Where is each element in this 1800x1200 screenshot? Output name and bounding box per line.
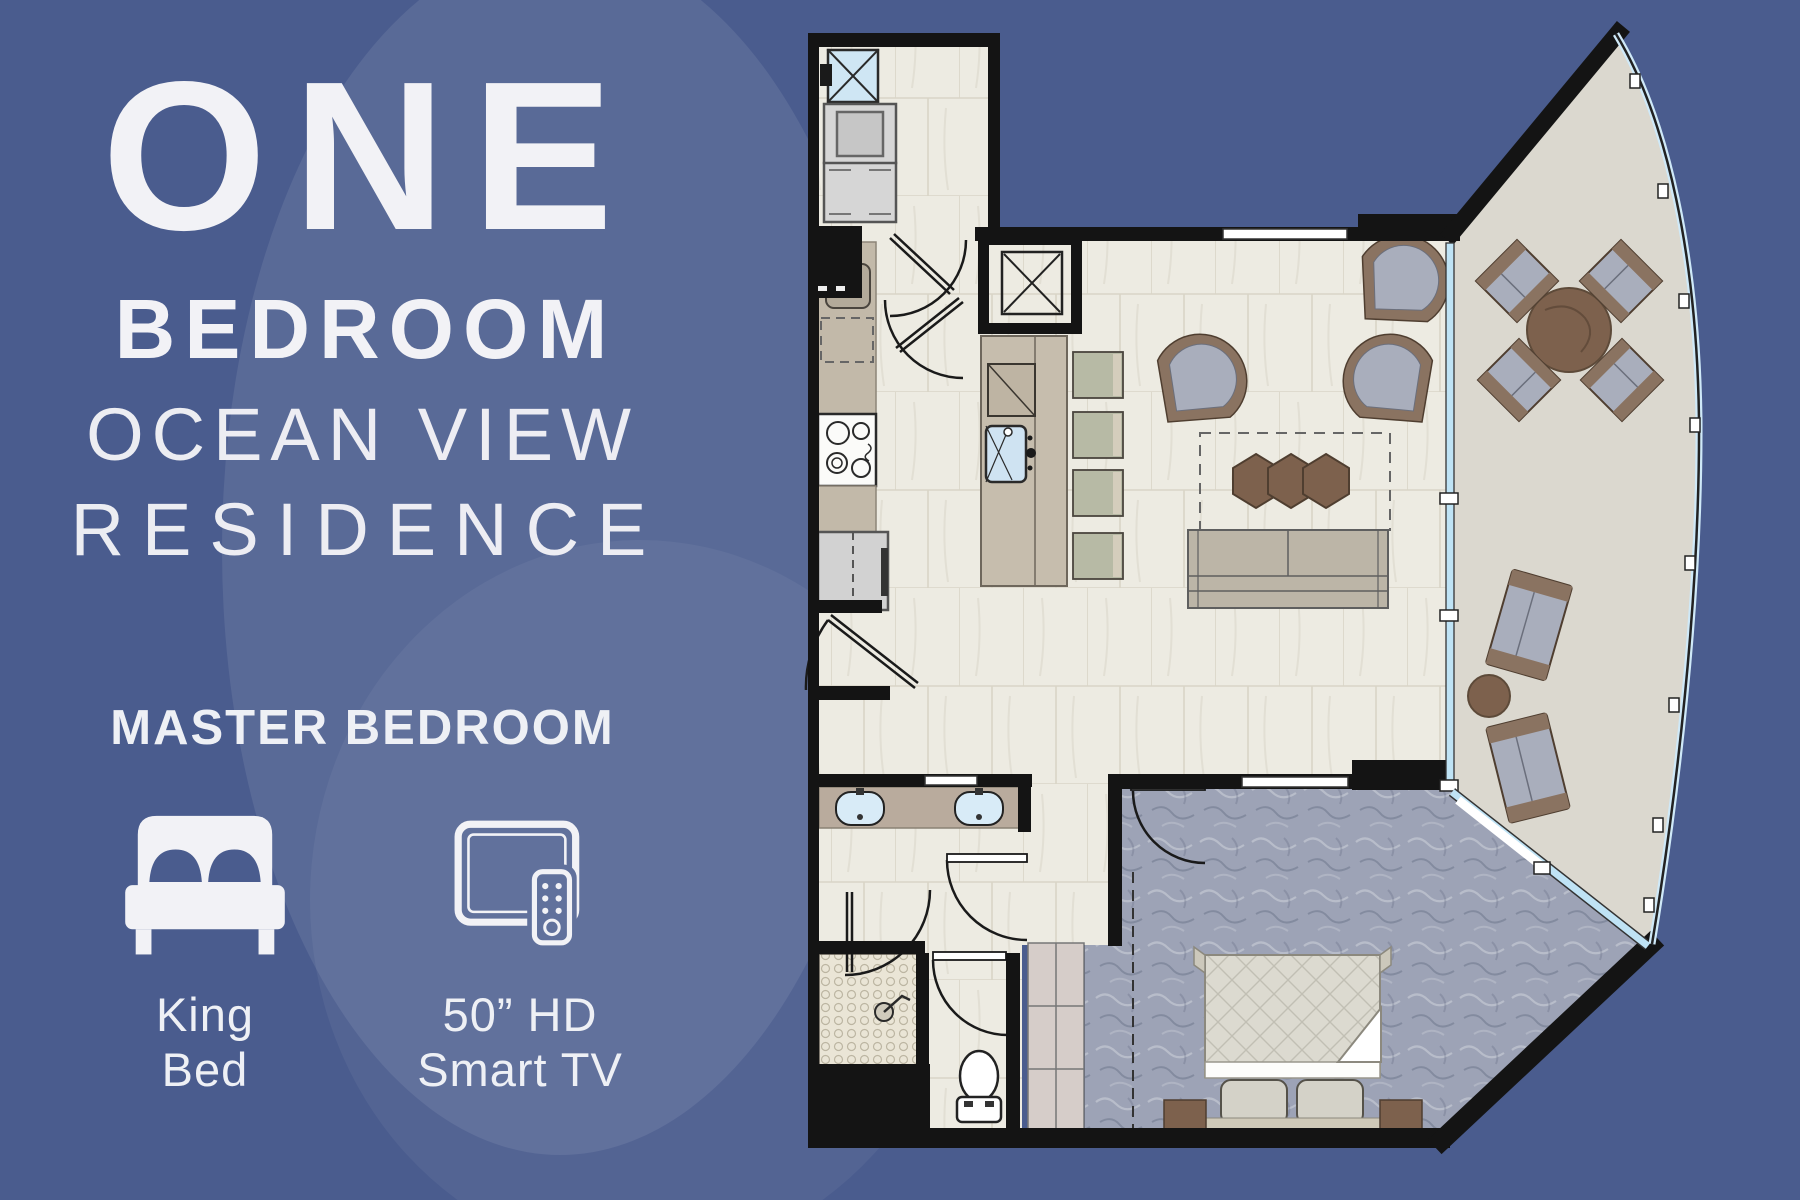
pillow <box>1297 1080 1363 1124</box>
pillow <box>1221 1080 1287 1124</box>
balcony-floor <box>1449 34 1699 944</box>
island-faucet <box>1026 448 1036 458</box>
fridge-handle <box>881 548 888 596</box>
living-room-window <box>1223 229 1347 239</box>
vanity-sink <box>955 792 1003 825</box>
floor-plan <box>0 0 1800 1200</box>
flyer-canvas: ONE BEDROOM OCEAN VIEW RESIDENCE MASTER … <box>0 0 1800 1200</box>
bathroom-door-leaf <box>947 854 1027 862</box>
toilet-room-door-leaf <box>933 952 1006 960</box>
vanity-sink <box>836 792 884 825</box>
utility-shaft <box>808 226 862 298</box>
refrigerator <box>818 532 888 610</box>
nightstand <box>1164 1100 1206 1132</box>
sofa <box>1188 530 1388 608</box>
hexagon-coffee-tables <box>1233 454 1349 508</box>
living-balcony-glass-wall <box>1446 243 1454 789</box>
nightstand <box>1380 1100 1422 1132</box>
kitchen-counter <box>818 486 876 532</box>
toilet <box>957 1051 1001 1122</box>
bathroom-window <box>925 776 977 785</box>
sink-faucet <box>820 64 832 86</box>
bedroom-window <box>1242 777 1348 787</box>
balcony <box>1449 34 1699 944</box>
balcony-side-table <box>1468 675 1510 717</box>
wardrobe-shelves <box>1028 943 1084 1131</box>
